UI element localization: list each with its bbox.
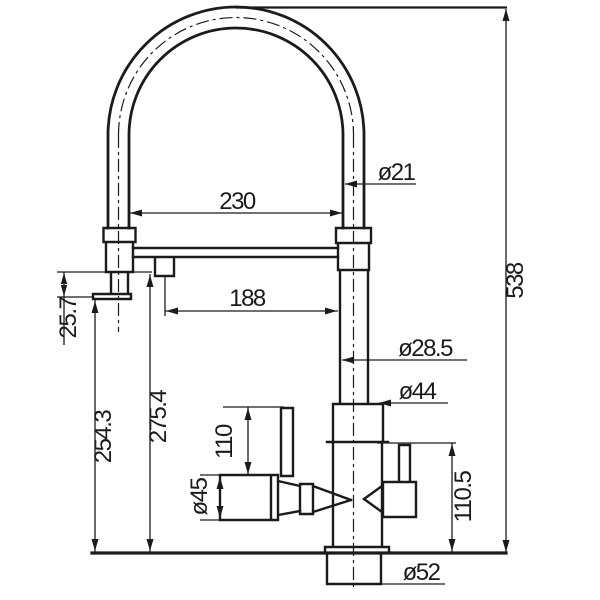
left-handle-path: [220, 408, 300, 520]
dim-188-label: 188: [229, 285, 266, 312]
dim-handle-diameter: ø45: [186, 475, 224, 520]
dim-230-label: 230: [219, 188, 256, 215]
dim-arch-width: 230: [129, 188, 343, 217]
riser-column: [327, 228, 388, 442]
dim-44-arrow: [379, 400, 391, 407]
dim-riser-diameter: ø28.5: [342, 335, 467, 364]
dim-hose-diameter: ø21: [345, 159, 416, 188]
dim-44-label: ø44: [399, 378, 437, 405]
dim-outlet-height: 254.3: [90, 300, 117, 552]
faucet-body: [300, 442, 389, 553]
dim-handle-length: 110: [211, 407, 284, 475]
dim-52-label: ø52: [403, 559, 441, 586]
faucet-dimension-drawing: 538 230 ø21 188 25.7 254.3 275.4: [0, 0, 600, 600]
dim-254-3-label: 254.3: [90, 410, 117, 464]
spray-head: [93, 228, 136, 299]
dim-110-5-label: 110.5: [450, 470, 477, 522]
right-handle: [383, 445, 416, 517]
technical-drawing-canvas: 538 230 ø21 188 25.7 254.3 275.4: [0, 0, 600, 600]
dim-body-diameter: ø44: [379, 378, 448, 407]
dim-handle-height: 110.5: [377, 443, 477, 553]
left-handle: [220, 408, 300, 520]
right-handle-path: [383, 445, 416, 517]
dim-110-label: 110: [211, 424, 238, 459]
dim-base-diameter: ø52: [381, 559, 445, 586]
dim-275-4-label: 275.4: [145, 390, 172, 444]
dim-28-5-arrow: [342, 357, 354, 364]
support-arm-path: [133, 248, 338, 276]
dim-45-label: ø45: [186, 477, 213, 515]
dim-28-5-label: ø28.5: [398, 335, 453, 362]
dim-21-label: ø21: [378, 159, 416, 186]
dim-21-arrow: [345, 181, 357, 188]
riser-column-path: [327, 228, 388, 442]
dim-spout-reach: 188: [165, 276, 338, 316]
dim-538-label: 538: [502, 262, 529, 299]
faucet-body-path: [300, 442, 389, 553]
dim-head-offset: 25.7: [55, 272, 107, 345]
support-arm: [133, 248, 338, 276]
spray-head-path: [93, 228, 136, 299]
dim-25-7-label: 25.7: [55, 296, 82, 338]
